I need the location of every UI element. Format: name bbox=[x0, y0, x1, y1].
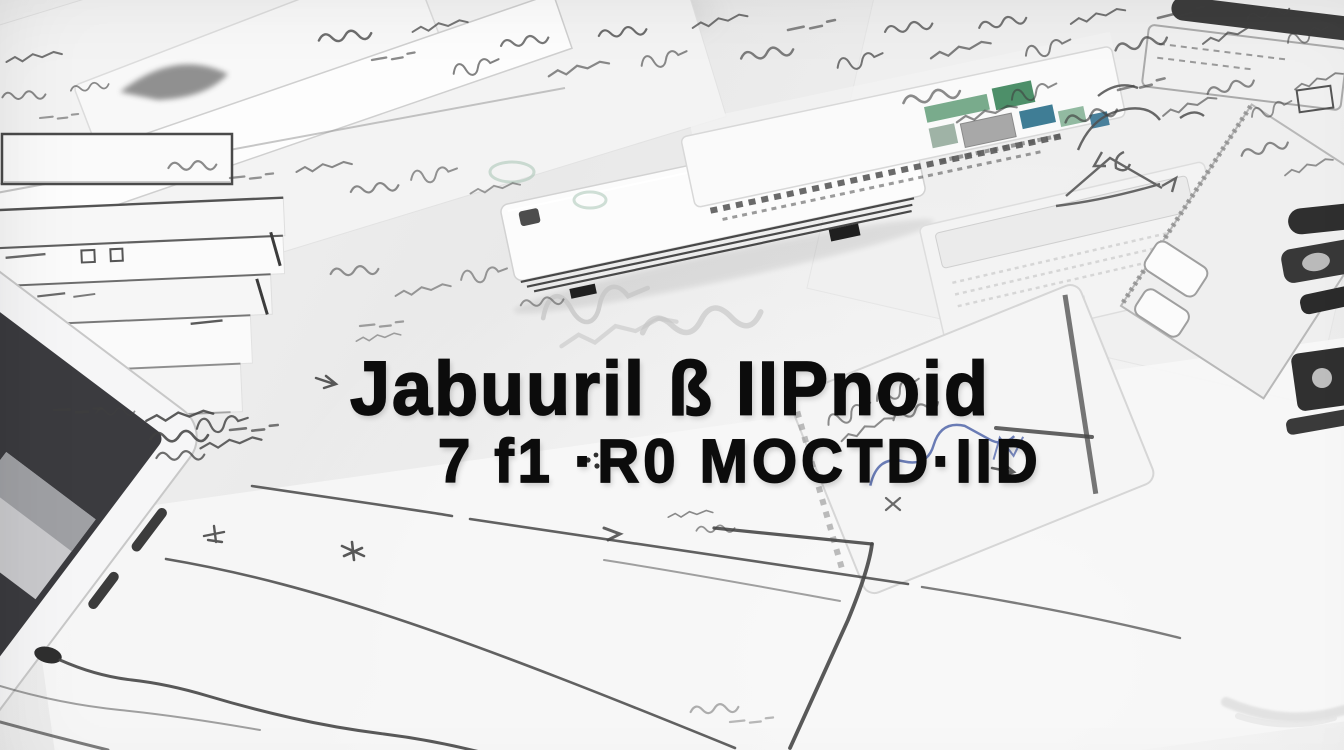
desk-scene: Jabuuril ß IIPnoid 7 f1 ·R0 MOCTD·IID bbox=[0, 0, 1344, 750]
sketch-art-layer bbox=[0, 0, 1344, 750]
